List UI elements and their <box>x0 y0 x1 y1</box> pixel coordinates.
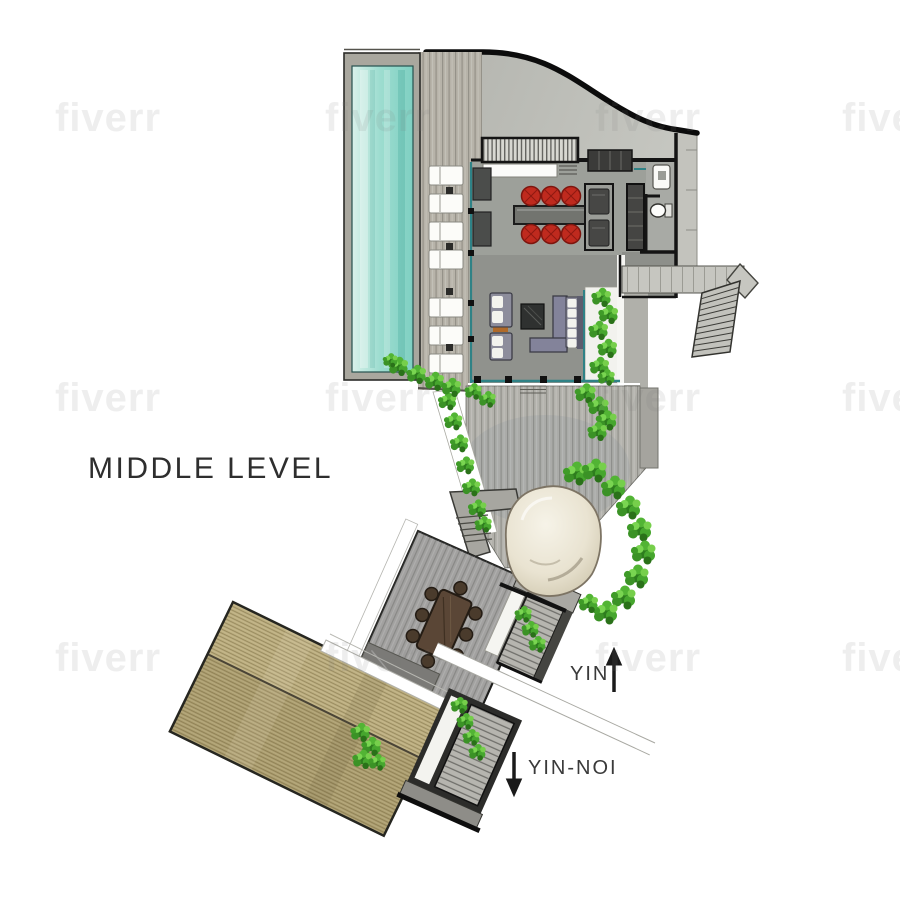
structural-column <box>468 208 474 214</box>
sun-lounger <box>429 222 463 241</box>
structural-column <box>505 376 512 383</box>
structural-column <box>474 376 481 383</box>
side-bench <box>493 328 508 333</box>
bathroom <box>646 162 676 252</box>
page-title: MIDDLE LEVEL <box>88 452 333 486</box>
wall-cabinet <box>473 212 491 246</box>
sofa <box>490 293 512 327</box>
floor-plan-drawing <box>0 0 900 900</box>
structural-column <box>468 250 474 256</box>
label-yin-noi: YIN-NOI <box>528 757 618 780</box>
sun-lounger <box>429 354 463 373</box>
coffee-table <box>521 304 544 329</box>
structural-column <box>468 300 474 306</box>
label-yin: YIN <box>570 663 609 686</box>
pantry-cabinet <box>627 184 644 250</box>
cooktop <box>589 189 609 214</box>
sink-unit <box>589 220 609 246</box>
structural-column <box>574 376 581 383</box>
dining-table <box>514 206 594 224</box>
side-walkway <box>624 288 648 388</box>
arrow-down-icon <box>507 752 522 796</box>
sofa <box>490 333 512 360</box>
building-interior <box>468 133 676 388</box>
sun-lounger <box>429 250 463 269</box>
sun-lounger <box>429 166 463 185</box>
sun-lounger <box>429 326 463 345</box>
swimming-pool <box>344 50 420 381</box>
wall-cabinet <box>473 168 491 200</box>
kitchen-island <box>585 184 613 250</box>
sun-loungers <box>429 166 463 373</box>
deck-side-table <box>446 243 453 250</box>
deck-side-table <box>446 288 453 295</box>
deck-side-table <box>446 187 453 194</box>
exterior-ledge <box>676 133 697 266</box>
sun-lounger <box>429 298 463 317</box>
louver-screen <box>482 138 578 162</box>
stone-boulder <box>506 486 601 596</box>
toilet <box>651 204 666 217</box>
kitchen-counter <box>483 164 557 177</box>
deck-side-table <box>446 344 453 351</box>
structural-column <box>540 376 547 383</box>
retaining-band <box>640 388 658 468</box>
sun-lounger <box>429 194 463 213</box>
structural-column <box>468 336 474 342</box>
floor-plan-page: fiverr fiverr fiverr fiverr fiverr fiver… <box>0 0 900 900</box>
